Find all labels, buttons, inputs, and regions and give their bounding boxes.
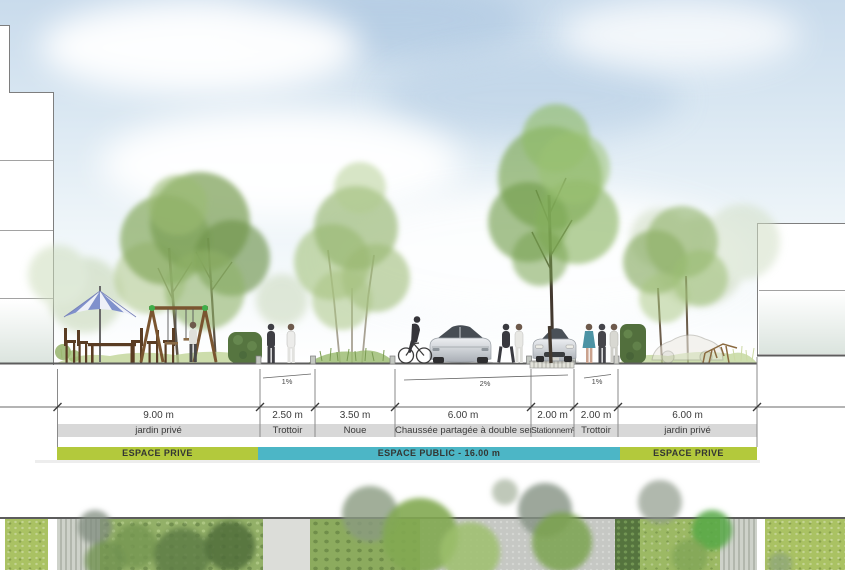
- dimension-cell: 6.00 m: [395, 408, 531, 424]
- right-building-floor-line: [759, 290, 845, 291]
- dimension-cell: 6.00 m: [618, 408, 757, 424]
- plan-garden-right: [640, 519, 720, 570]
- left-building-floor-line: [0, 160, 53, 161]
- cloud: [560, 0, 800, 70]
- plan-view-border: [0, 517, 845, 519]
- plan-noue: [310, 519, 420, 570]
- label-cell: Stationnemᵗ: [531, 424, 574, 437]
- left-building-upper: [0, 25, 10, 93]
- slope-label: 1%: [584, 377, 610, 386]
- zone-label-private-left: ESPACE PRIVE: [57, 447, 258, 460]
- dimension-cell: 2.50 m: [260, 408, 315, 424]
- left-building-glazing: [0, 300, 53, 364]
- bar-shadow: [35, 460, 760, 463]
- cloud: [40, 0, 360, 95]
- zone-label-public: ESPACE PUBLIC - 16.00 m: [258, 447, 620, 460]
- parking-paver-strip: [530, 361, 574, 368]
- plan-private-garden-left: [100, 519, 263, 570]
- slope-label: 2%: [472, 379, 498, 388]
- dimension-cell: 2.00 m: [574, 408, 618, 424]
- plan-decking-left: [57, 519, 100, 570]
- cloud: [380, 55, 680, 140]
- label-cell: Trottoir: [574, 424, 618, 437]
- label-cell: Noue: [315, 424, 395, 437]
- plan-roadway: [420, 519, 615, 570]
- zone-label-private-right: ESPACE PRIVE: [620, 447, 757, 460]
- plan-lawn-left: [5, 519, 48, 570]
- street-section-drawing: 9.00 m 2.50 m 3.50 m 6.00 m 2.00 m 2.00 …: [0, 0, 845, 570]
- cloud: [100, 110, 460, 220]
- right-building-glazing: [759, 292, 845, 354]
- label-cell: jardin privé: [618, 424, 757, 437]
- plan-hedge: [615, 519, 640, 570]
- left-building-floor-line: [0, 298, 53, 299]
- plan-decking-right: [720, 519, 757, 570]
- left-building-floor-line: [0, 230, 53, 231]
- plan-lawn-right: [765, 519, 845, 570]
- label-cell: Chaussée partagée à double sens: [395, 424, 531, 437]
- label-cell: Trottoir: [260, 424, 315, 437]
- label-cell: jardin privé: [57, 424, 260, 437]
- plan-sidewalk-left: [263, 519, 310, 570]
- dimension-cell: 3.50 m: [315, 408, 395, 424]
- slope-label: 1%: [274, 377, 300, 386]
- cloud: [330, 190, 750, 320]
- slope-lines: [263, 374, 611, 380]
- dimension-cell: 9.00 m: [57, 408, 260, 424]
- dimension-cell: 2.00 m: [531, 408, 574, 424]
